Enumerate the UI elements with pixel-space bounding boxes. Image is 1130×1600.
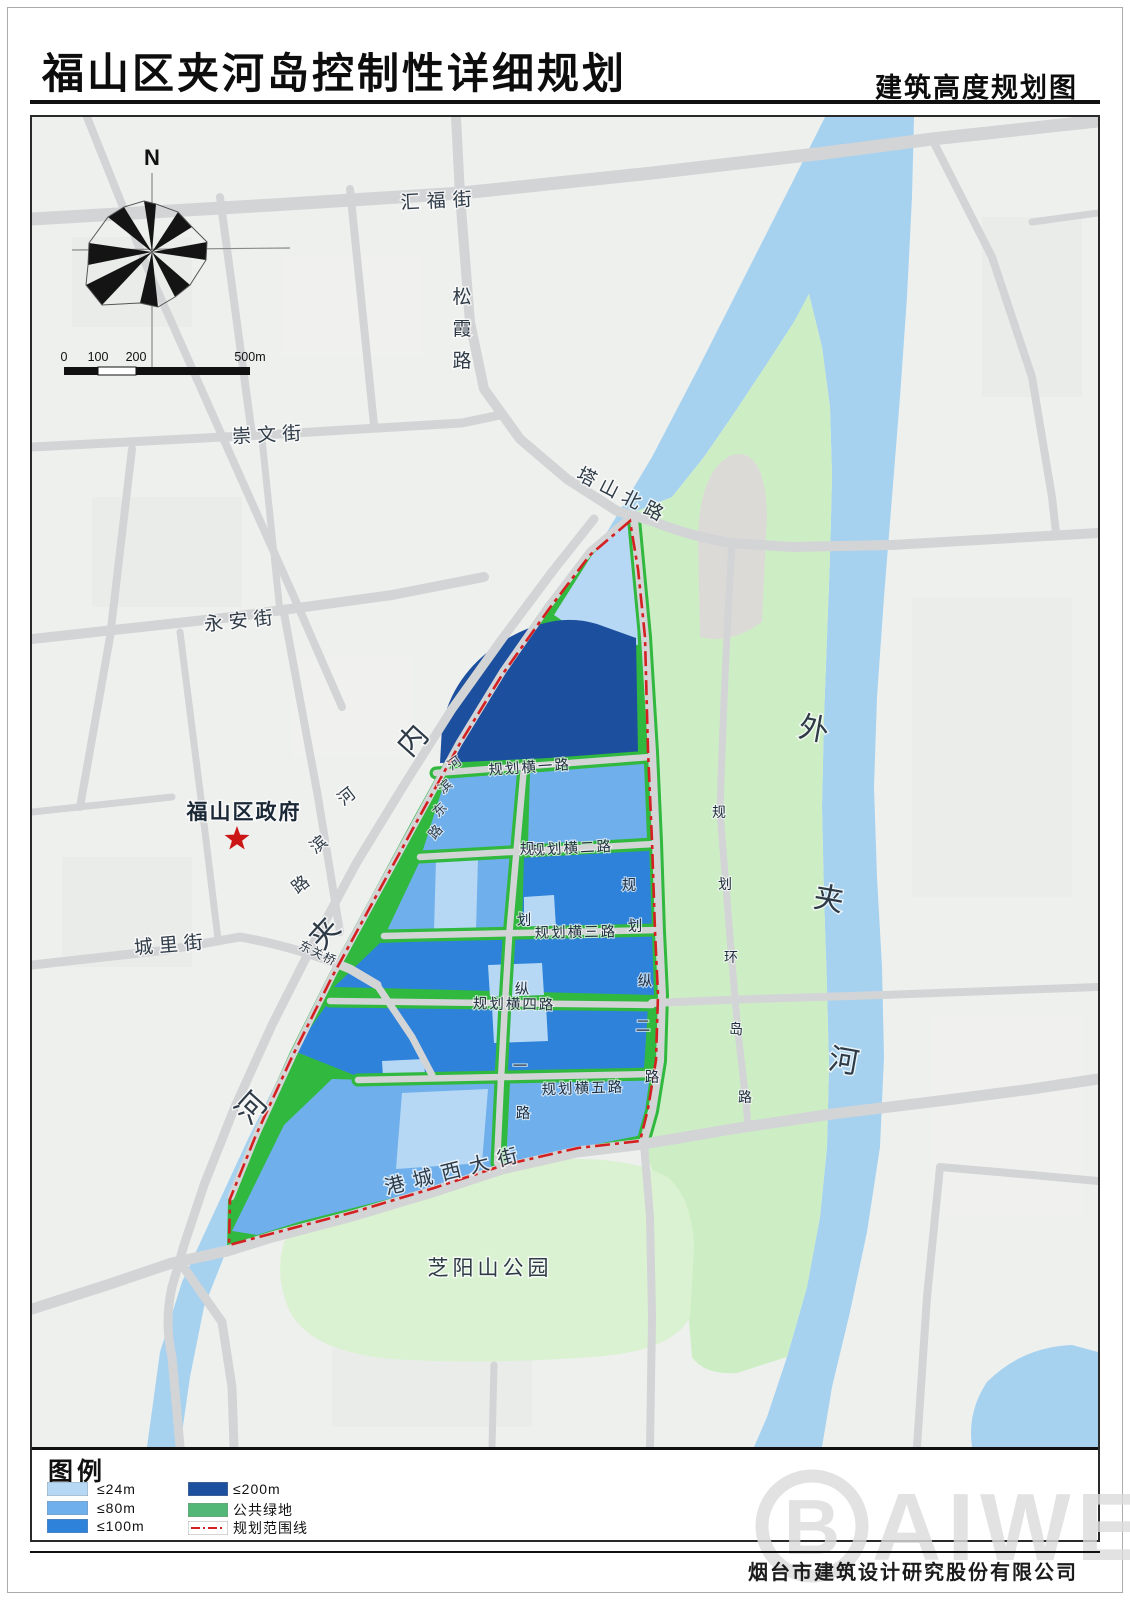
road-label-hengsanlu: 规划横三路 (535, 923, 618, 941)
road-label-zongyilu-1: 规 (520, 841, 535, 858)
legend-item: ≤24m (47, 1481, 136, 1497)
block-le24 (434, 857, 478, 932)
road-park-south (492, 1365, 494, 1447)
legend-swatch-le200 (188, 1482, 228, 1496)
road-label-zongyilu-4: 一 (513, 1059, 528, 1075)
road-label-zongyilu-5: 路 (516, 1105, 531, 1122)
road-label-zongerlu-3: 纵 (638, 973, 653, 990)
street-label-chongwen: 崇文街 (232, 422, 308, 448)
legend-swatch-le24 (47, 1482, 88, 1496)
legend-item: ≤200m (188, 1481, 281, 1497)
road-label-hengsilu: 规划横四路 (473, 995, 556, 1013)
street-label-songxia-2: 霞 (452, 319, 471, 340)
road-label-zongerlu-2: 划 (628, 918, 643, 935)
page-root: { "header": { "title": "福山区夹河岛控制性详细规划", … (0, 0, 1130, 1600)
road-label-zongyilu-2: 划 (517, 912, 532, 929)
road-label-zongerlu-5: 路 (645, 1069, 660, 1086)
river-label-waijiahe-3: 河 (826, 1043, 861, 1081)
legend-item: ≤100m (47, 1518, 145, 1534)
street-label-songxia-1: 松 (452, 286, 471, 308)
road-label-hengwulu: 规划横五路 (541, 1079, 624, 1099)
scale-seg-2 (98, 367, 136, 375)
river-label-waijiahe-2: 夹 (811, 881, 846, 919)
road-label-huandaolu-1: 规 (712, 804, 726, 820)
legend-label: 公共绿地 (233, 1500, 293, 1520)
river-label-waijiahe-1: 外 (796, 711, 831, 749)
road-label-zongerlu-1: 规 (622, 877, 637, 894)
footer-divider (30, 1551, 1100, 1553)
legend-label: ≤100m (97, 1518, 145, 1534)
map-frame: 汇福街 松 霞 路 崇文街 永安街 塔山北路 河 滨 路 城里街 东关桥 福山区… (30, 115, 1100, 1542)
planning-map: 汇福街 松 霞 路 崇文街 永安街 塔山北路 河 滨 路 城里街 东关桥 福山区… (32, 117, 1098, 1447)
legend-item: 规划范围线 (188, 1518, 308, 1538)
page-title: 福山区夹河岛控制性详细规划 (42, 40, 627, 101)
scale-seg-1 (64, 367, 98, 375)
street-label-songxia-3: 路 (452, 350, 471, 372)
road-label-huandaolu-2: 划 (718, 876, 732, 892)
legend-swatch-green (188, 1503, 228, 1517)
legend-label: ≤200m (233, 1481, 281, 1497)
block-le100 (294, 1003, 648, 1079)
poi-label-zhiyangshan-park: 芝阳山公园 (428, 1257, 553, 1280)
street-label-huifujie: 汇福街 (400, 188, 479, 214)
scale-seg-3 (136, 367, 250, 375)
scale-tick-500: 500m (234, 350, 265, 364)
legend-item: 公共绿地 (188, 1500, 293, 1520)
legend-swatch-le100 (47, 1519, 88, 1533)
road-label-zongyilu-3: 纵 (515, 981, 530, 998)
title-divider (30, 100, 1100, 104)
company-name: 烟台市建筑设计研究股份有限公司 (748, 1556, 1078, 1585)
legend-label: ≤80m (97, 1500, 136, 1516)
legend-label: ≤24m (97, 1481, 136, 1497)
poi-label-fushan-gov: 福山区政府 (186, 800, 302, 824)
legend-label: 规划范围线 (233, 1518, 308, 1538)
legend-swatch-le80 (47, 1501, 88, 1515)
legend-item: ≤80m (47, 1500, 136, 1516)
block-le80 (528, 763, 647, 845)
north-label: N (144, 145, 160, 170)
road-label-huandaolu-3: 环 (724, 949, 738, 965)
road-label-zongerlu-4: 二 (636, 1019, 651, 1035)
scale-tick-200: 200 (126, 350, 147, 364)
road-label-huandaolu-4: 岛 (729, 1021, 743, 1037)
scale-tick-0: 0 (61, 350, 68, 364)
scale-tick-100: 100 (88, 350, 109, 364)
road-label-huandaolu-5: 路 (738, 1089, 752, 1105)
legend-swatch-boundary-line (188, 1521, 228, 1535)
